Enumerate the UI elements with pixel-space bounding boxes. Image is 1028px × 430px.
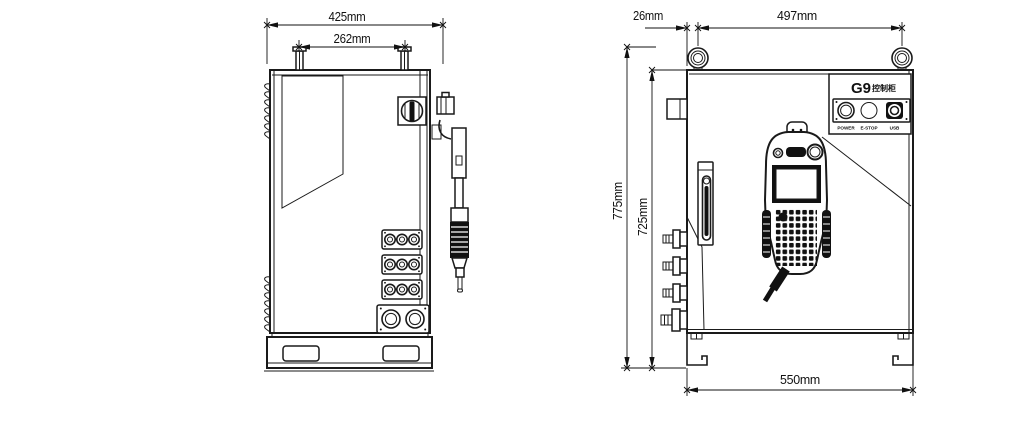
lifting-eyebolt-left (688, 48, 708, 70)
dim-label-eyebolt-spacing-side: 262mm (334, 31, 371, 46)
g9-cabinet-dimension-drawing: 425mm 262mm G9 控制柜 (0, 0, 1028, 430)
dim-label-eyebolt-offset: 26mm (633, 8, 663, 23)
model-suffix-label: 控制柜 (872, 83, 896, 93)
cable-gland-1 (663, 230, 687, 248)
cable-gland-4 (661, 309, 687, 331)
model-label: G9 (851, 80, 871, 97)
side-base-plinth (264, 333, 434, 371)
front-control-panel: G9 控制柜 POWER E-STOP USB (829, 74, 911, 134)
connector-plate-3 (382, 280, 422, 299)
connector-plate-1 (382, 230, 422, 249)
estop-label: E-STOP (860, 126, 877, 131)
connector-plate-2 (382, 255, 422, 274)
side-eyebolt-right (398, 47, 411, 70)
dim-label-base-width: 550mm (780, 372, 820, 387)
teach-pendant-side-profile (432, 93, 469, 293)
dim-label-overall-depth: 425mm (329, 9, 366, 24)
power-label: POWER (837, 126, 855, 131)
door-handle[interactable] (698, 162, 713, 245)
technical-drawing-canvas: 425mm 262mm G9 控制柜 (0, 0, 1028, 430)
cabinet-front-view: G9 控制柜 POWER E-STOP USB (610, 8, 916, 396)
dim-label-overall-height: 775mm (610, 182, 625, 220)
side-view-dimensions: 425mm 262mm (264, 9, 446, 64)
front-base-feet (687, 333, 913, 365)
front-side-connector (667, 99, 687, 119)
lifting-eyebolt-right (892, 48, 912, 70)
dim-label-eyebolt-spacing-front: 497mm (777, 8, 817, 23)
dim-label-body-height: 725mm (635, 198, 650, 236)
side-base-slot-right (383, 346, 419, 361)
pendant-jog-knob[interactable] (779, 213, 788, 222)
cable-gland-2 (663, 257, 687, 275)
pendant-grip-left (762, 210, 771, 258)
rotary-disconnect-switch (398, 97, 426, 125)
usb-label: USB (890, 126, 900, 131)
usb-port[interactable] (886, 102, 903, 119)
cabinet-side-view: 425mm 262mm (264, 9, 469, 371)
pendant-grip-right (822, 210, 831, 258)
side-base-slot-left (283, 346, 319, 361)
pendant-speaker-grille (786, 147, 806, 157)
cable-gland-3 (663, 284, 687, 302)
connector-plate-large (377, 305, 429, 333)
side-eyebolt-left (293, 47, 306, 70)
